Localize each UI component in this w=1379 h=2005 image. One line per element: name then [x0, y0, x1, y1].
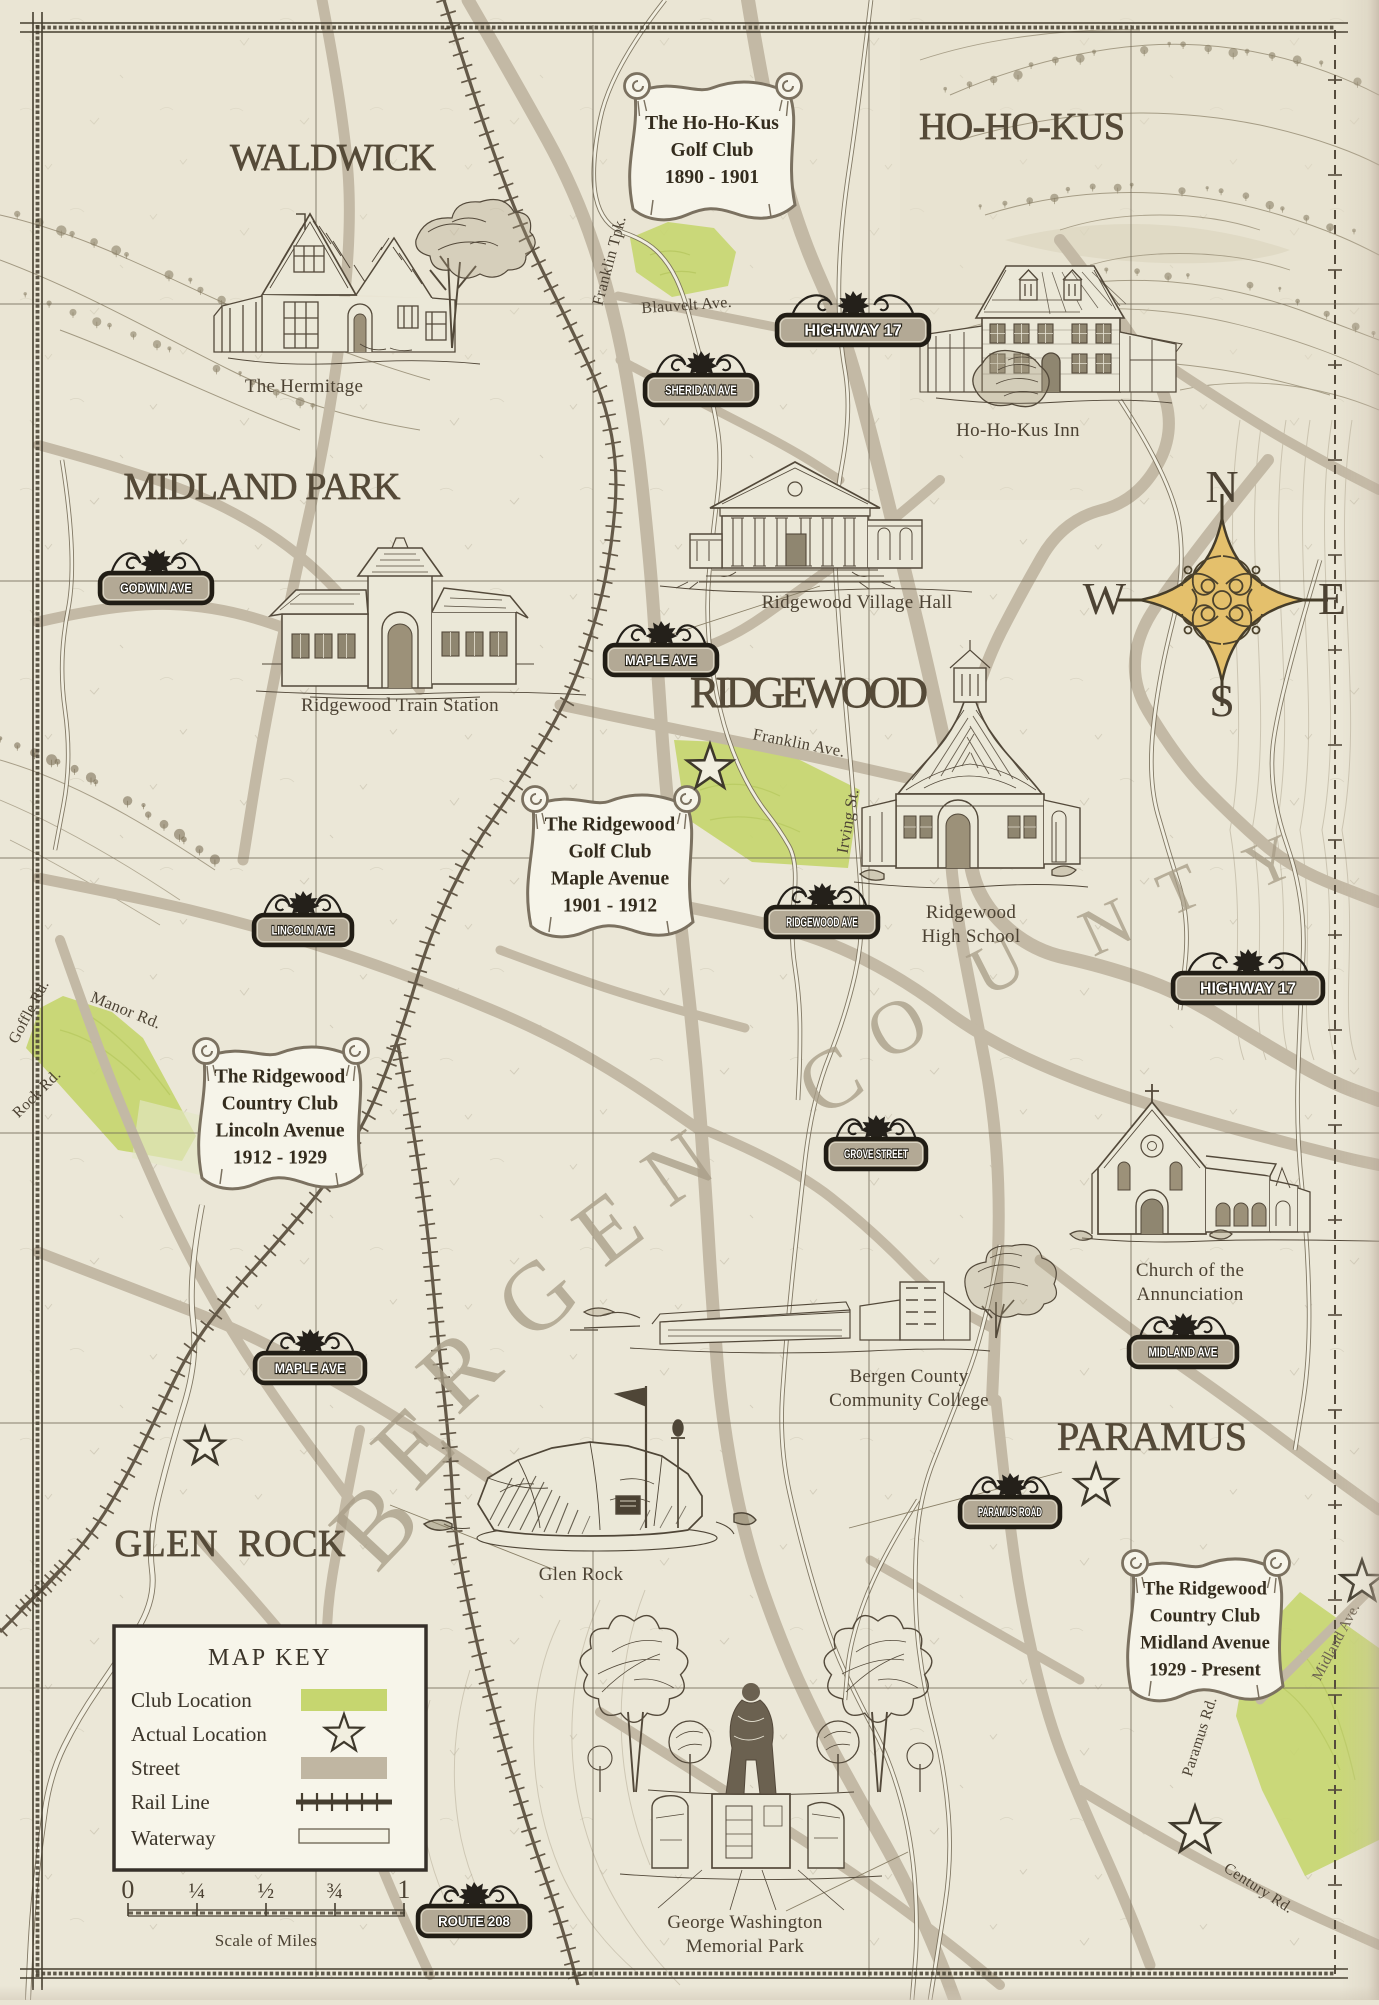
svg-text:Bergen County: Bergen County	[849, 1366, 968, 1387]
svg-text:Church of the: Church of the	[1136, 1260, 1244, 1281]
svg-text:George Washington: George Washington	[667, 1912, 823, 1933]
svg-text:Golf Club: Golf Club	[671, 140, 754, 161]
svg-text:The Ridgewood: The Ridgewood	[545, 815, 676, 836]
svg-text:Ridgewood Train Station: Ridgewood Train Station	[301, 695, 499, 716]
svg-text:MIDLAND PARK: MIDLAND PARK	[124, 466, 402, 508]
svg-text:N: N	[1205, 461, 1238, 512]
svg-text:Rail Line: Rail Line	[131, 1790, 210, 1814]
svg-text:1929 - Present: 1929 - Present	[1149, 1661, 1261, 1681]
svg-text:1901 - 1912: 1901 - 1912	[563, 896, 657, 917]
svg-text:Street: Street	[131, 1756, 180, 1780]
svg-text:The Ridgewood: The Ridgewood	[1143, 1580, 1268, 1600]
svg-text:ROUTE 208: ROUTE 208	[438, 1913, 510, 1929]
svg-text:Maple Avenue: Maple Avenue	[551, 869, 670, 890]
svg-text:¾: ¾	[327, 1878, 344, 1903]
svg-text:RIDGEWOOD AVE: RIDGEWOOD AVE	[786, 916, 858, 930]
svg-text:Actual Location: Actual Location	[131, 1722, 267, 1746]
svg-text:Club Location: Club Location	[131, 1688, 252, 1712]
svg-text:1: 1	[397, 1875, 410, 1904]
svg-text:MAPLE AVE: MAPLE AVE	[625, 653, 697, 668]
svg-text:MIDLAND AVE: MIDLAND AVE	[1148, 1346, 1217, 1360]
svg-text:HO-HO-KUS: HO-HO-KUS	[919, 106, 1125, 148]
svg-text:W: W	[1083, 573, 1127, 624]
svg-text:PARAMUS ROAD: PARAMUS ROAD	[978, 1507, 1042, 1519]
svg-text:WALDWICK: WALDWICK	[230, 137, 437, 179]
svg-text:Golf Club: Golf Club	[569, 842, 652, 863]
svg-text:GROVE STREET: GROVE STREET	[844, 1149, 908, 1161]
svg-text:GODWIN AVE: GODWIN AVE	[120, 581, 192, 596]
svg-text:Lincoln Avenue: Lincoln Avenue	[215, 1121, 344, 1142]
svg-text:The Hermitage: The Hermitage	[245, 376, 363, 397]
svg-text:¼: ¼	[189, 1878, 206, 1903]
svg-text:The Ridgewood: The Ridgewood	[215, 1067, 346, 1088]
svg-text:High School: High School	[922, 926, 1021, 947]
svg-text:Annunciation: Annunciation	[1136, 1284, 1243, 1305]
svg-text:LINCOLN AVE: LINCOLN AVE	[272, 923, 335, 937]
svg-text:1890 - 1901: 1890 - 1901	[665, 167, 759, 188]
svg-text:MAPLE AVE: MAPLE AVE	[275, 1361, 345, 1376]
svg-text:Waterway: Waterway	[131, 1826, 216, 1850]
svg-text:HIGHWAY 17: HIGHWAY 17	[1200, 981, 1296, 998]
svg-text:SHERIDAN AVE: SHERIDAN AVE	[665, 383, 737, 398]
svg-text:Ridgewood: Ridgewood	[926, 902, 1017, 923]
svg-text:Ho-Ho-Kus Inn: Ho-Ho-Kus Inn	[956, 420, 1080, 441]
svg-text:Glen Rock: Glen Rock	[539, 1564, 624, 1585]
svg-text:HIGHWAY 17: HIGHWAY 17	[804, 323, 901, 340]
svg-text:1912 - 1929: 1912 - 1929	[233, 1148, 327, 1169]
svg-text:Country Club: Country Club	[1150, 1607, 1261, 1627]
svg-text:Memorial Park: Memorial Park	[686, 1936, 805, 1957]
svg-text:PARAMUS: PARAMUS	[1057, 1414, 1247, 1459]
svg-text:The Ho-Ho-Kus: The Ho-Ho-Kus	[645, 113, 779, 134]
svg-text:RIDGEWOOD: RIDGEWOOD	[690, 668, 928, 717]
svg-text:Community College: Community College	[829, 1390, 989, 1411]
svg-text:½: ½	[258, 1878, 275, 1903]
svg-text:0: 0	[121, 1875, 134, 1904]
svg-text:Midland Avenue: Midland Avenue	[1140, 1634, 1270, 1654]
svg-text:MAP KEY: MAP KEY	[208, 1645, 332, 1671]
svg-text:Country Club: Country Club	[222, 1094, 339, 1115]
svg-text:Scale of Miles: Scale of Miles	[215, 1931, 317, 1950]
svg-text:GLEN ROCK: GLEN ROCK	[115, 1523, 347, 1565]
svg-text:Ridgewood Village Hall: Ridgewood Village Hall	[762, 592, 953, 613]
svg-text:S: S	[1209, 675, 1235, 726]
